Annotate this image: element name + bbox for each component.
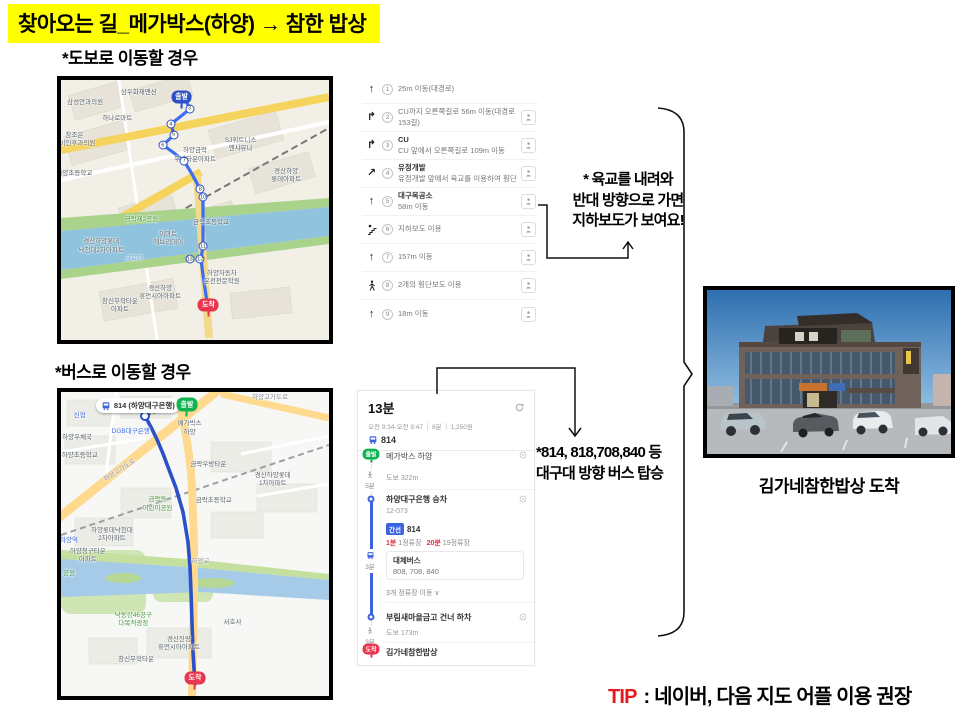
expand-stops[interactable]: 3개 정류장 이동 ∨ — [386, 588, 440, 598]
map-label: 하양롯데낙천대2차아파트 — [91, 527, 133, 543]
map-label: 삼성안과의원 — [67, 99, 103, 107]
slide-canvas: 찾아오는 길_메가박스(하양) → 참한 밥상 *도보로 이동할 경우 *버스로… — [0, 0, 960, 720]
turn-right-icon: ↱ — [364, 112, 379, 123]
stairs-icon — [364, 224, 379, 236]
timeline-end-stop: 김가네참한밥상 — [386, 647, 516, 658]
map-label: 참조은이비인후과의원 — [57, 132, 95, 148]
street-view-button[interactable] — [521, 166, 536, 181]
board-stop-marker — [368, 496, 375, 503]
step-number: 7 — [382, 252, 393, 263]
bus-route-pill[interactable]: 814 (하양대구은행) — [96, 398, 180, 413]
walk-map-overlay: 출발 도착 삼성안과의원삼우화재맨션하나로마트참조은이비인후과의원하양금락우방타… — [61, 80, 329, 340]
destination-pin: 도착 — [198, 298, 219, 317]
straight-arrow-icon: ↑ — [364, 309, 379, 320]
timeline-start-stop: 메가박스 하양 — [386, 451, 516, 462]
street-view-button[interactable] — [521, 138, 536, 153]
gps-icon[interactable] — [517, 611, 529, 623]
step-number: 6 — [382, 224, 393, 235]
turn-right-icon: ↱ — [364, 140, 379, 151]
alight-stop: 부림새마을금고 건너 하차 — [386, 612, 516, 623]
map-label: 금락초등학교 — [196, 497, 232, 505]
route-step-marker: 12 — [196, 255, 205, 264]
step-text: 대구목공소58m 이동 — [398, 191, 518, 212]
map-label: 하양교 — [191, 558, 209, 566]
building-photo-illustration — [707, 290, 951, 454]
map-label: 하양역 — [60, 537, 78, 545]
map-label: 공원 — [63, 570, 75, 578]
route-step-marker: 4 — [166, 120, 175, 129]
straight-arrow-icon: ↑ — [364, 84, 379, 95]
map-label: 삼우화재맨션 — [121, 89, 157, 97]
route-step: ↑125m 이동(대경로) — [362, 76, 538, 104]
street-view-button[interactable] — [521, 110, 536, 125]
step-text: 2개의 횡단보도 이용 — [398, 280, 518, 291]
map-label: 하양고가도로 — [103, 458, 138, 484]
map-label: 메가박스하양 — [178, 420, 202, 436]
start-pin: 출발 — [171, 90, 192, 109]
step-text: 유정개발유정개발 앞에서 육교를 이용하여 횡단 — [398, 163, 518, 184]
route-step: ↑7157m 이동 — [362, 244, 538, 272]
walk-note: * 육교를 내려와 반대 방향으로 가면 지하보도가 보여요! — [552, 170, 704, 232]
map-label: 하양초등학교 — [57, 170, 92, 178]
wait-times: 1분1정류장20분19정류장 — [386, 538, 475, 548]
map-label: 하양고가도로 — [252, 394, 288, 402]
map-label: DGB대구은행 — [112, 427, 150, 435]
tip-line: TIP : 네이버, 다음 지도 어플 이용 권장 — [608, 680, 911, 709]
route-step-marker: 13 — [185, 255, 194, 264]
route-step-marker: 6 — [158, 141, 167, 150]
tip-label: TIP — [608, 686, 637, 708]
alternative-bus-box: 대체버스 808, 708, 840 — [386, 551, 524, 580]
alight-stop-marker — [368, 614, 375, 621]
step-number: 4 — [382, 168, 393, 179]
destination-pin: 도착 — [185, 671, 206, 690]
step-number: 3 — [382, 140, 393, 151]
bus-map[interactable]: 814 (하양대구은행) 출발 도착 신협국민은행DGB대구은행하양우체국하양초… — [57, 388, 333, 700]
step-text: 18m 이동 — [398, 309, 518, 320]
map-label: 창신무학타운아파트 — [102, 298, 138, 314]
timeline-start-pin: 출발 — [362, 449, 379, 463]
map-label: 하양청구타운아파트 — [70, 548, 106, 564]
diagonal-right-icon: ↗ — [364, 168, 379, 179]
route-step: 6지하보도 이용 — [362, 216, 538, 244]
walk-map[interactable]: 출발 도착 삼성안과의원삼우화재맨션하나로마트참조은이비인후과의원하양금락우방타… — [57, 76, 333, 344]
map-label: 하양자동차운전전문학원 — [204, 269, 240, 285]
bus-map-overlay: 814 (하양대구은행) 출발 도착 신협국민은행DGB대구은행하양우체국하양초… — [61, 392, 329, 696]
step-number: 8 — [382, 280, 393, 291]
bus-leg-icon: 3분 — [358, 549, 382, 573]
route-step: ↱3CUCU 앞에서 오른쪽길로 109m 이동 — [362, 132, 538, 160]
photo-caption: 김가네참한밥상 도착 — [703, 472, 955, 497]
walk-steps-list: ↑125m 이동(대경로)↱2CU까지 오른쪽길로 56m 이동(대경로153길… — [362, 76, 538, 328]
map-label: 신협 — [74, 412, 86, 420]
map-label: 하나로마트 — [102, 115, 132, 123]
board-stop: 하양대구은행 승차 — [386, 494, 516, 505]
route-step-marker: 5 — [169, 130, 178, 139]
route-step-marker: 10 — [199, 193, 208, 202]
map-label: 이마트에브리데이 — [153, 230, 183, 246]
street-view-button[interactable] — [521, 278, 536, 293]
tip-text: : 네이버, 다음 지도 어플 이용 권장 — [639, 686, 912, 708]
map-label: 경산하양롯데아파트 — [271, 168, 301, 184]
bus-note: *814, 818,708,840 등 대구대 방향 버스 탑승 — [536, 443, 708, 484]
map-label: 창신무학타운 — [118, 655, 154, 663]
route-step: ↱2CU까지 오른쪽길로 56m 이동(대경로153길) — [362, 104, 538, 132]
walk-section-heading: *도보로 이동할 경우 — [62, 44, 198, 69]
car — [915, 416, 951, 437]
map-label: 금호강 — [124, 255, 142, 263]
straight-arrow-icon: ↑ — [364, 252, 379, 263]
route-step: ↑918m 이동 — [362, 300, 538, 328]
street-view-button[interactable] — [521, 307, 536, 322]
step-text: CUCU 앞에서 오른쪽길로 109m 이동 — [398, 135, 518, 156]
map-label: 금락제2공원 — [125, 216, 159, 224]
route-step-marker: 11 — [199, 242, 208, 251]
time-range: 오전 9:34-오전 9:47 — [368, 421, 423, 431]
restaurant-photo — [703, 286, 955, 458]
walk-distance: 도보 173m — [386, 628, 418, 638]
map-label: 금락초등학교 — [193, 219, 229, 227]
bus-icon — [368, 435, 378, 445]
bus-type-badge: 간선 — [386, 523, 404, 535]
map-label: 경산하양롯데낙천대2차아파트 — [78, 238, 123, 254]
start-pin: 출발 — [177, 398, 198, 417]
route-step-marker: 7 — [180, 156, 189, 165]
map-label: 금락우방타운 — [190, 461, 226, 469]
map-label: 금락동어린이공원 — [143, 496, 173, 512]
bus-number: 814 — [407, 525, 420, 534]
map-label: 경산하양롯데1차아파트 — [255, 472, 291, 488]
bus-timeline: 출발 메가박스 하양 도보 322m 5분 하양대구은행 승차 12-073 간… — [358, 449, 534, 663]
route-step: ↗4유정개발유정개발 앞에서 육교를 이용하여 횡단 — [362, 160, 538, 188]
timeline-end-pin: 도착 — [362, 644, 379, 658]
route-step-marker: 8 — [196, 185, 205, 194]
gps-icon[interactable] — [517, 449, 529, 461]
page-title: 찾아오는 길_메가박스(하양) → 참한 밥상 — [8, 4, 380, 43]
map-label: 경산하양휴먼시아아파트 — [139, 285, 181, 301]
route-step: 82개의 횡단보도 이용 — [362, 272, 538, 300]
route-step: ↑5대구목공소58m 이동 — [362, 188, 538, 216]
step-number: 5 — [382, 196, 393, 207]
step-number: 1 — [382, 84, 393, 95]
bus-icon — [101, 401, 111, 411]
step-text: 25m 이동(대경로) — [398, 84, 536, 95]
map-label: 하양금락우방타운아파트 — [174, 147, 216, 163]
map-label: 낙동강46공구다목적광장 — [115, 612, 152, 628]
step-text: 157m 이동 — [398, 252, 518, 263]
walk-distance: 도보 322m — [386, 473, 418, 483]
step-text: 지하보도 이용 — [398, 224, 518, 235]
crosswalk-icon — [364, 280, 379, 292]
map-label: 경산진량휴먼시아아파트 — [158, 636, 200, 652]
bus-section-heading: *버스로 이동할 경우 — [55, 358, 191, 383]
map-label: 하양우체국 — [62, 434, 92, 442]
stop-id: 12-073 — [386, 508, 408, 515]
map-label: SJ휘트니스엔샤뮤나 — [225, 137, 257, 153]
map-label: 하양초등학교 — [62, 452, 98, 460]
map-label: 서호사 — [224, 619, 242, 627]
straight-arrow-icon: ↑ — [364, 196, 379, 207]
step-text: CU까지 오른쪽길로 56m 이동(대경로153길) — [398, 107, 518, 128]
step-number: 9 — [382, 309, 393, 320]
step-number: 2 — [382, 112, 393, 123]
walk-leg-icon: 5분 — [358, 469, 382, 492]
bus-note-connector-arrow — [425, 355, 593, 447]
gps-icon[interactable] — [517, 493, 529, 505]
total-duration: 13분 — [368, 401, 394, 416]
